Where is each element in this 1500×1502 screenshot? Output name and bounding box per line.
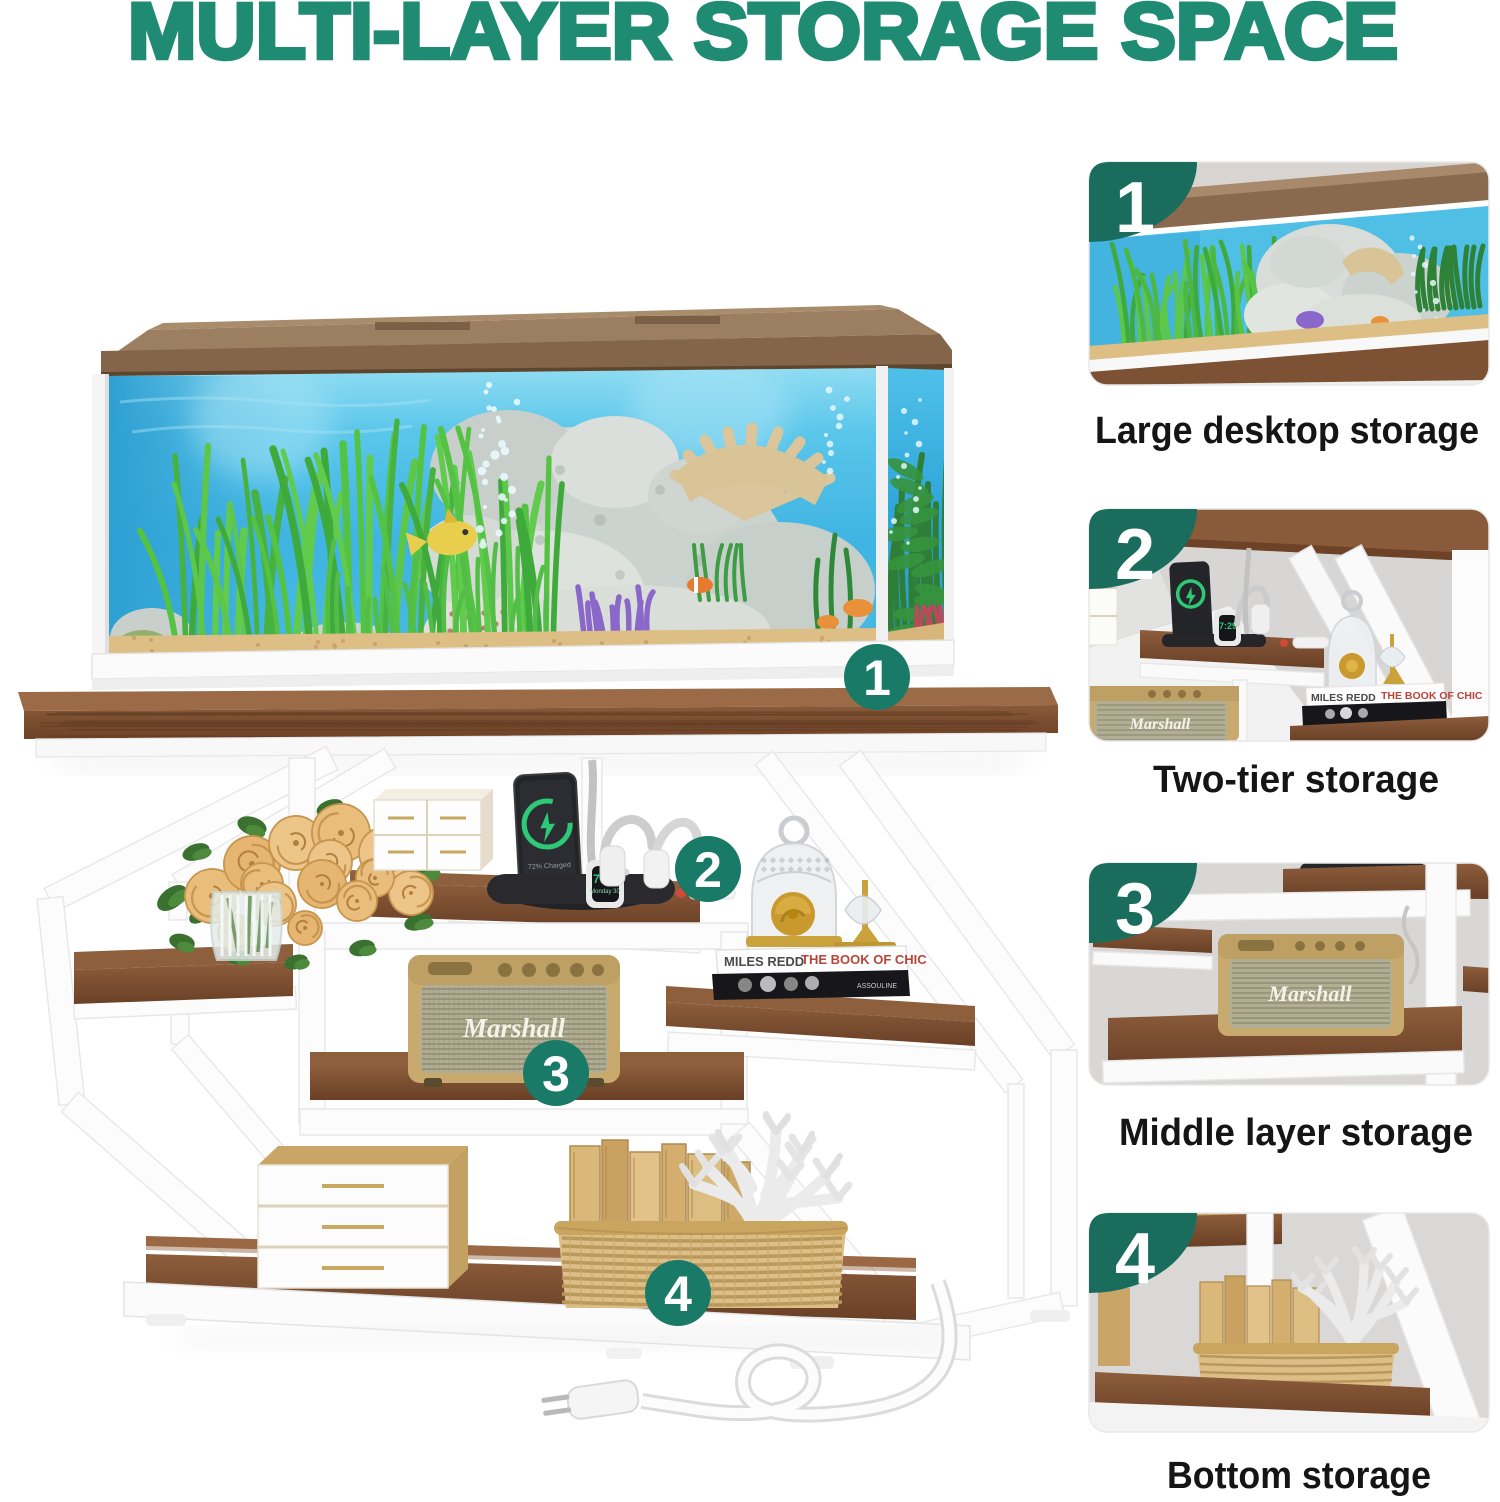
svg-text:MULTI-LAYER STORAGE SPACE: MULTI-LAYER STORAGE SPACE — [128, 0, 1398, 75]
svg-text:2: 2 — [1115, 515, 1155, 595]
svg-text:Marshall: Marshall — [1267, 981, 1352, 1006]
svg-text:4: 4 — [664, 1266, 692, 1322]
svg-text:Two-tier storage: Two-tier storage — [1153, 759, 1439, 801]
svg-text:THE BOOK OF CHIC: THE BOOK OF CHIC — [1381, 690, 1483, 702]
svg-text:Marshall: Marshall — [1129, 716, 1191, 733]
svg-text:ASSOULINE: ASSOULINE — [857, 983, 897, 990]
svg-text:1: 1 — [863, 650, 891, 706]
svg-text:Large desktop storage: Large desktop storage — [1095, 410, 1479, 452]
svg-text:THE BOOK OF CHIC: THE BOOK OF CHIC — [801, 952, 927, 967]
svg-text:Monday 30: Monday 30 — [590, 889, 620, 895]
svg-text:Bottom storage: Bottom storage — [1167, 1455, 1431, 1497]
svg-text:3: 3 — [542, 1046, 570, 1102]
svg-text:2: 2 — [694, 842, 722, 898]
svg-text:4: 4 — [1115, 1219, 1155, 1299]
svg-text:1: 1 — [1115, 168, 1155, 248]
svg-text:MILES REDD: MILES REDD — [724, 954, 804, 969]
svg-text:Middle layer storage: Middle layer storage — [1119, 1112, 1473, 1154]
svg-text:MILES REDD: MILES REDD — [1311, 692, 1376, 704]
svg-text:Marshall: Marshall — [462, 1013, 566, 1043]
svg-text:3: 3 — [1115, 869, 1155, 949]
